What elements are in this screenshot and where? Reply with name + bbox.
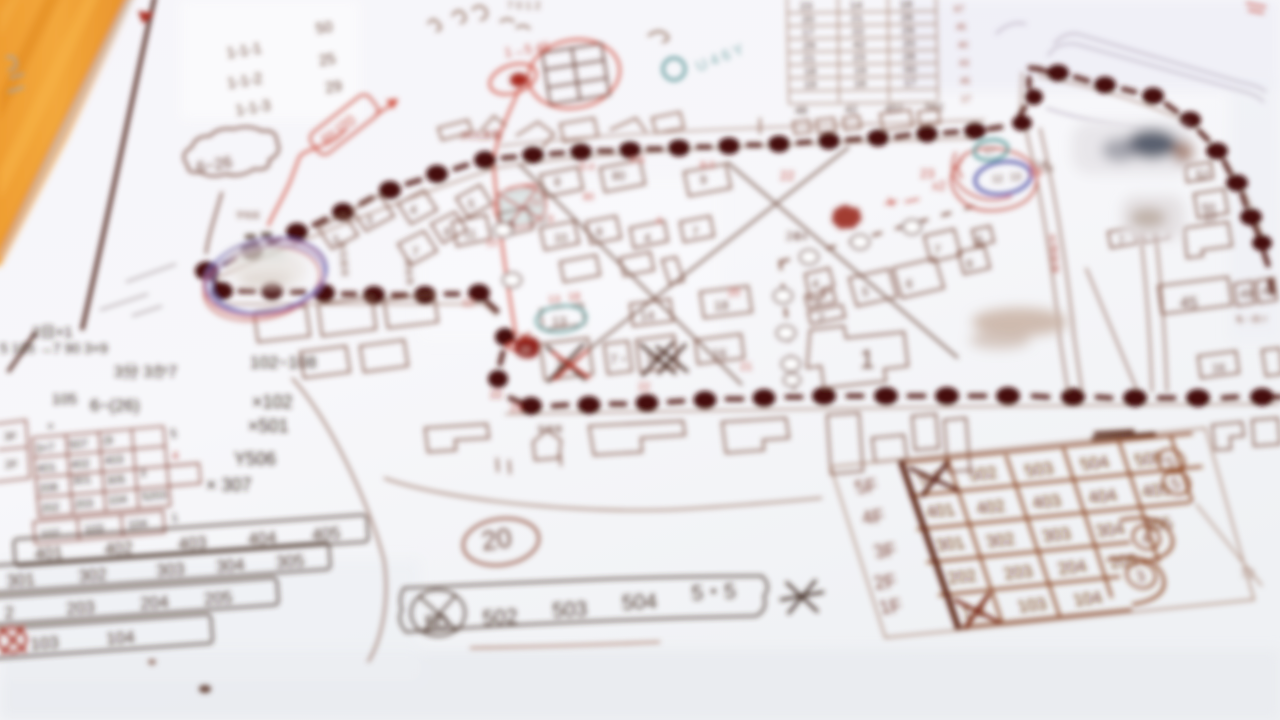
- svg-text:4: 4: [656, 216, 662, 227]
- svg-text:403: 403: [104, 454, 124, 468]
- svg-text:6: 6: [906, 277, 913, 291]
- svg-text:42: 42: [853, 39, 865, 51]
- svg-text:403: 403: [1030, 490, 1064, 513]
- svg-text:18: 18: [568, 291, 580, 303]
- svg-text:502: 502: [966, 462, 1000, 485]
- svg-text:43: 43: [959, 58, 969, 68]
- svg-text:9: 9: [548, 214, 554, 225]
- svg-text:40: 40: [958, 40, 968, 50]
- svg-text:203: 203: [74, 498, 94, 512]
- svg-text:17: 17: [802, 27, 814, 39]
- svg-text:5 105 →7 90 3×9: 5 105 →7 90 3×9: [0, 340, 108, 356]
- svg-text:温: 温: [404, 259, 412, 268]
- svg-text:5203: 5203: [141, 489, 168, 503]
- svg-text:3: 3: [814, 295, 821, 309]
- svg-text:10: 10: [554, 231, 568, 245]
- svg-text:301: 301: [71, 474, 91, 488]
- svg-text:7: 7: [934, 243, 941, 257]
- svg-text:2: 2: [4, 603, 15, 623]
- svg-text:80: 80: [612, 169, 626, 183]
- svg-text:×501: ×501: [248, 416, 289, 436]
- svg-text:49: 49: [1240, 287, 1254, 301]
- svg-text:305: 305: [275, 551, 305, 572]
- svg-text:103: 103: [30, 633, 60, 654]
- svg-text:302: 302: [983, 529, 1017, 552]
- svg-text:24: 24: [795, 231, 807, 243]
- svg-text:3: 3: [139, 467, 146, 480]
- svg-text:402: 402: [70, 458, 90, 472]
- svg-text:宿: 宿: [338, 240, 346, 250]
- svg-text:5・5: 5・5: [691, 580, 737, 605]
- svg-text:29: 29: [803, 40, 815, 52]
- svg-text:00: 00: [904, 64, 916, 76]
- svg-text:18: 18: [900, 0, 912, 11]
- svg-text:57: 57: [1204, 211, 1218, 225]
- svg-text:16: 16: [854, 78, 866, 90]
- svg-text:23: 23: [800, 1, 812, 13]
- svg-text:学校前: 学校前: [236, 210, 260, 220]
- svg-text:8: 8: [596, 225, 603, 239]
- svg-text:208: 208: [38, 482, 58, 496]
- svg-text:20: 20: [521, 346, 530, 355]
- svg-text:13: 13: [552, 314, 566, 329]
- svg-text:29: 29: [902, 25, 914, 37]
- svg-text:20: 20: [728, 287, 740, 299]
- svg-text:18: 18: [804, 66, 816, 78]
- svg-text:52: 52: [1196, 168, 1210, 182]
- svg-text:7: 7: [692, 225, 699, 239]
- svg-text:旅: 旅: [406, 276, 414, 286]
- svg-text:8: 8: [976, 233, 983, 247]
- svg-text:104: 104: [107, 494, 128, 508]
- svg-text:18: 18: [714, 298, 728, 313]
- svg-text:8: 8: [554, 175, 561, 189]
- svg-text:7・: 7・: [610, 352, 630, 367]
- svg-text:72: 72: [1240, 566, 1254, 581]
- svg-text:21: 21: [803, 53, 815, 65]
- svg-text:3F: 3F: [4, 431, 17, 443]
- svg-text:103: 103: [1015, 594, 1049, 617]
- svg-text:2日×1: 2日×1: [32, 324, 72, 341]
- svg-text:22: 22: [780, 168, 794, 183]
- svg-text:3×7: 3×7: [35, 442, 55, 456]
- svg-text:205: 205: [203, 588, 233, 609]
- svg-text:17: 17: [904, 77, 916, 89]
- svg-text:23: 23: [853, 52, 865, 64]
- svg-text:11: 11: [464, 227, 477, 241]
- svg-text:施: 施: [340, 258, 348, 268]
- svg-text:301: 301: [933, 532, 967, 555]
- svg-text:JR九条駅: JR九条駅: [460, 129, 502, 142]
- svg-text:301: 301: [6, 570, 36, 591]
- svg-text:8: 8: [444, 225, 451, 239]
- svg-text:1: 1: [860, 344, 874, 374]
- svg-text:302: 302: [78, 565, 108, 586]
- svg-text:Y506: Y506: [234, 449, 276, 469]
- svg-text:16: 16: [712, 346, 726, 361]
- svg-text:私・四ツ: 私・四ツ: [1236, 315, 1268, 324]
- svg-text:401: 401: [36, 462, 56, 476]
- svg-text:×: ×: [47, 421, 55, 434]
- svg-text:303: 303: [156, 559, 186, 580]
- svg-text:(9: (9: [102, 435, 113, 448]
- svg-text:28: 28: [903, 51, 915, 63]
- svg-text:17: 17: [984, 146, 996, 157]
- svg-text:42: 42: [845, 104, 857, 116]
- svg-text:25: 25: [530, 198, 542, 209]
- svg-text:25: 25: [318, 50, 337, 69]
- svg-text:設: 設: [341, 267, 349, 277]
- svg-text:3: 3: [366, 213, 373, 227]
- svg-text:204: 204: [140, 592, 170, 613]
- svg-text:20: 20: [903, 38, 915, 50]
- svg-text:41: 41: [1262, 284, 1276, 298]
- svg-text:13: 13: [486, 238, 498, 249]
- svg-text:5-4: 5-4: [580, 162, 595, 173]
- svg-text:507: 507: [68, 438, 88, 452]
- svg-text:2: 2: [818, 311, 825, 325]
- svg-text:21: 21: [740, 361, 752, 373]
- svg-text:6~(26): 6~(26): [90, 396, 140, 415]
- svg-text:45: 45: [1180, 295, 1198, 312]
- svg-text:45: 45: [956, 22, 966, 32]
- svg-text:21: 21: [851, 13, 863, 25]
- svg-text:304: 304: [215, 555, 245, 576]
- svg-text:17: 17: [961, 94, 971, 104]
- svg-text:503: 503: [552, 598, 588, 623]
- svg-text:泉: 泉: [405, 267, 413, 277]
- svg-text:401: 401: [923, 499, 957, 522]
- svg-text:80: 80: [583, 192, 595, 203]
- svg-text:12: 12: [462, 297, 474, 309]
- svg-text:4: 4: [410, 203, 417, 217]
- svg-text:19: 19: [854, 65, 866, 77]
- svg-text:22: 22: [852, 26, 864, 38]
- svg-text:2F: 2F: [5, 459, 18, 471]
- svg-text:3分 3か7: 3分 3か7: [114, 363, 177, 381]
- svg-text:7: 7: [412, 245, 419, 259]
- svg-text:16: 16: [1212, 361, 1226, 375]
- svg-text:9: 9: [966, 257, 973, 271]
- svg-text:5: 5: [468, 197, 475, 211]
- svg-text:×102: ×102: [252, 392, 293, 412]
- svg-text:202: 202: [945, 565, 979, 588]
- svg-text:4: 4: [172, 450, 179, 462]
- svg-text:22: 22: [638, 381, 650, 393]
- svg-text:48: 48: [795, 105, 807, 117]
- svg-text:502: 502: [482, 605, 518, 630]
- svg-text:303: 303: [1039, 523, 1073, 546]
- svg-text:562: 562: [925, 102, 943, 114]
- svg-text:14: 14: [640, 308, 654, 323]
- svg-text:12: 12: [992, 174, 1004, 185]
- svg-text:305: 305: [106, 474, 126, 488]
- svg-text:102~108: 102~108: [250, 353, 317, 372]
- svg-text:13: 13: [548, 294, 560, 306]
- svg-text:14: 14: [850, 0, 862, 12]
- svg-text:13: 13: [1010, 172, 1022, 183]
- svg-text:102: 102: [40, 528, 60, 542]
- svg-text:泉: 泉: [1050, 253, 1059, 264]
- svg-text:泉: 泉: [1051, 263, 1060, 274]
- svg-text:4-6: 4-6: [630, 155, 645, 166]
- svg-text:104: 104: [106, 628, 136, 649]
- svg-text:202: 202: [40, 502, 60, 516]
- svg-text:405: 405: [311, 524, 341, 545]
- svg-text:105: 105: [52, 391, 77, 408]
- svg-text:駐車場: 駐車場: [538, 424, 562, 434]
- svg-text:26: 26: [901, 12, 913, 24]
- svg-text:× 307: × 307: [206, 475, 252, 495]
- svg-text:22: 22: [490, 389, 502, 401]
- svg-text:x2: x2: [932, 178, 946, 193]
- svg-text:温: 温: [1049, 244, 1058, 254]
- svg-text:4: 4: [812, 277, 819, 291]
- svg-text:503: 503: [1022, 458, 1056, 481]
- svg-text:1: 1: [171, 512, 178, 525]
- svg-text:7 0 1 2: 7 0 1 2: [507, 0, 541, 12]
- svg-text:4: 4: [644, 231, 651, 245]
- svg-text:19: 19: [804, 79, 816, 91]
- svg-text:7: 7: [1118, 233, 1125, 247]
- svg-text:402: 402: [974, 496, 1008, 519]
- svg-text:50: 50: [315, 18, 334, 37]
- svg-text:5: 5: [170, 428, 177, 441]
- svg-text:504: 504: [621, 590, 658, 615]
- svg-text:5: 5: [862, 285, 869, 299]
- svg-text:67: 67: [954, 4, 964, 14]
- svg-text:45: 45: [960, 76, 970, 86]
- svg-text:14: 14: [1035, 159, 1047, 171]
- svg-text:23: 23: [510, 403, 522, 415]
- svg-text:50: 50: [424, 611, 449, 635]
- svg-text:泊: 泊: [339, 249, 347, 259]
- svg-text:29: 29: [324, 78, 343, 97]
- svg-text:9: 9: [700, 173, 707, 187]
- svg-text:20: 20: [480, 522, 514, 556]
- svg-text:203: 203: [1001, 561, 1035, 584]
- svg-text:天: 天: [1048, 234, 1057, 244]
- svg-text:203: 203: [66, 597, 96, 618]
- svg-text:8-2: 8-2: [700, 160, 715, 171]
- svg-text:20: 20: [802, 14, 814, 26]
